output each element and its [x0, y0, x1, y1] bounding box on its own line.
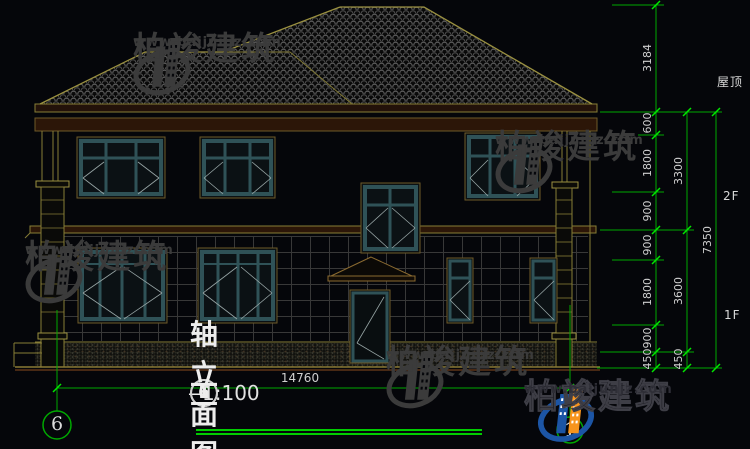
title-scale: 1:100 — [202, 381, 260, 405]
overall-width-dim: 14760 — [268, 371, 332, 385]
level-label-roof: 屋顶 — [717, 73, 743, 90]
level-label-2f: 2F — [723, 189, 740, 203]
stair-window — [361, 183, 420, 253]
watermark-url: www.baijunjz.com — [25, 243, 174, 258]
dim-text: 7350 — [701, 210, 715, 270]
entrance-door — [350, 290, 390, 363]
window — [447, 258, 473, 323]
watermark-url: www.baijunjz.com — [133, 35, 282, 50]
dim-text: 450 — [672, 329, 686, 389]
window — [200, 137, 275, 198]
window — [77, 137, 165, 198]
watermark-url: www.baijunjz.com — [495, 133, 644, 148]
dim-text: 3600 — [672, 261, 686, 321]
right-downspout-column — [552, 131, 578, 367]
door-canopy — [328, 257, 415, 281]
window — [530, 258, 557, 323]
dim-text: 3184 — [641, 28, 655, 88]
axis-bubble-left: 6 — [47, 413, 67, 435]
cad-elevation-canvas: 3184 600 1800 900 900 1800 900 450 3300 … — [0, 0, 750, 449]
title-underline — [196, 433, 482, 435]
side-steps — [14, 343, 42, 367]
watermark-url: www.baijunjz.com — [386, 348, 535, 363]
window — [198, 248, 277, 323]
roof-outline — [40, 7, 592, 104]
title-underline — [196, 429, 482, 431]
level-label-1f: 1F — [724, 308, 741, 322]
footer-brand-url: www.baijunjz.com — [524, 382, 673, 397]
dim-text: 3300 — [672, 141, 686, 201]
